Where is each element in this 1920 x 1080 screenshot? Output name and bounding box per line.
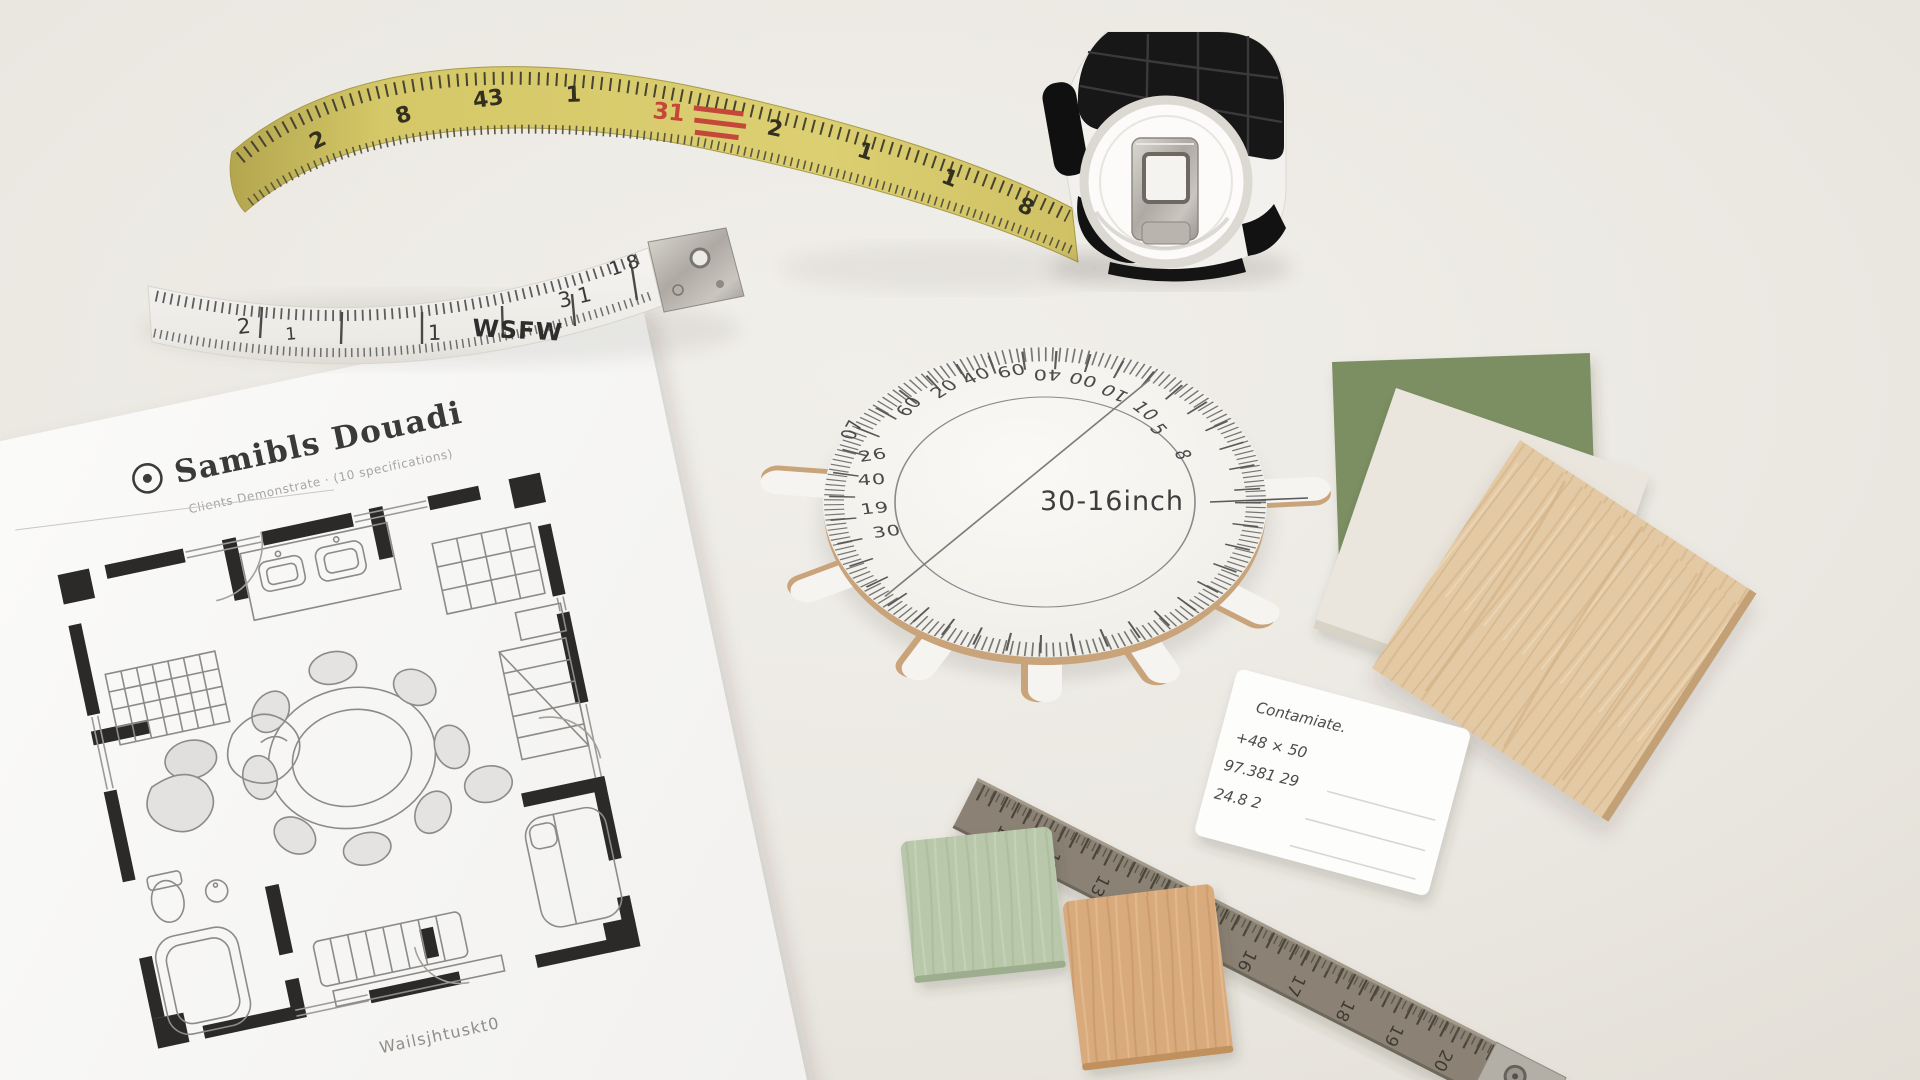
swatch-oak-small	[1062, 883, 1234, 1070]
svg-text:30: 30	[871, 522, 903, 542]
svg-text:19: 19	[859, 499, 891, 519]
protractor-label: 30-16inch	[1040, 486, 1184, 517]
svg-text:31: 31	[651, 98, 686, 127]
white-tape-brand: WSFW	[472, 314, 564, 347]
white-tape-number: 2	[236, 314, 252, 339]
photo-scene: Samibls Douadi Clients Demonstrate · (10…	[0, 0, 1920, 1080]
svg-text:40: 40	[857, 471, 887, 489]
svg-text:43: 43	[471, 85, 505, 114]
white-tape-number: 1	[428, 321, 442, 345]
svg-text:1: 1	[565, 82, 581, 108]
white-tape-number: 1	[285, 324, 298, 345]
swatch-sage-small	[900, 826, 1066, 983]
svg-text:40: 40	[1032, 365, 1061, 382]
belt-clip-icon	[1132, 138, 1198, 244]
